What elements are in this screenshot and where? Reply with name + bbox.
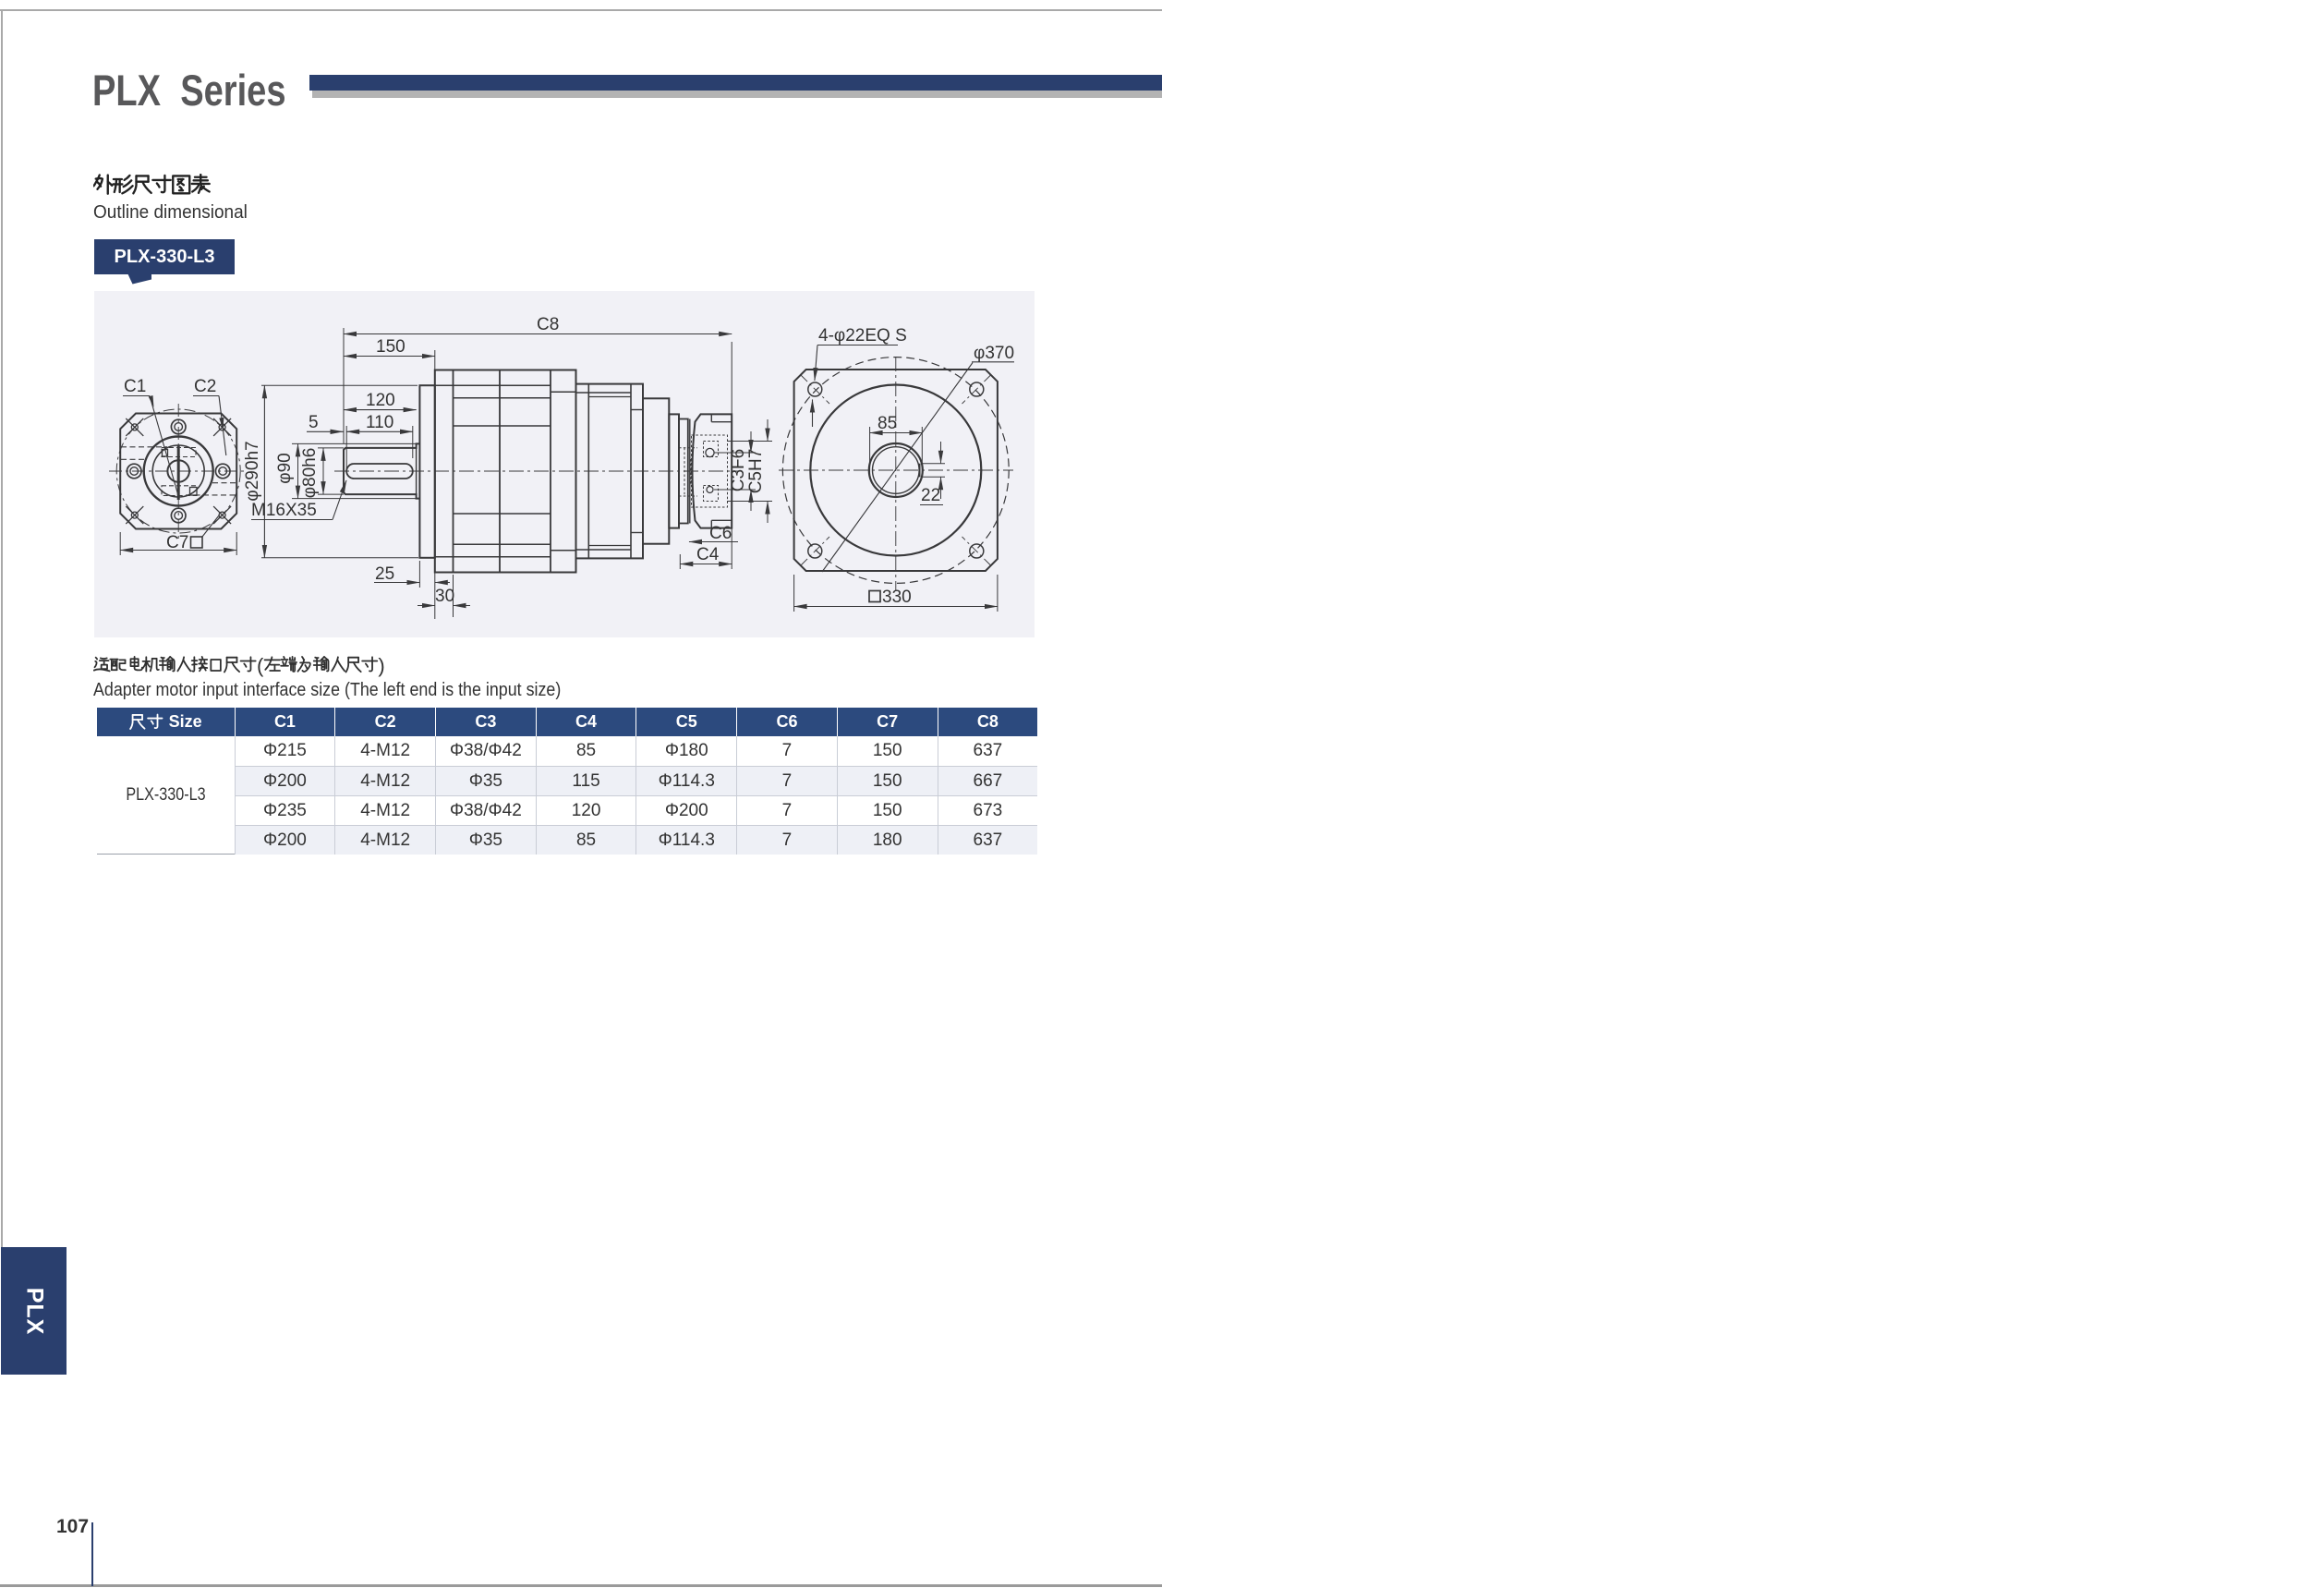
- svg-text:30: 30: [435, 587, 454, 606]
- svg-text:5: 5: [309, 413, 319, 432]
- svg-text:120: 120: [366, 391, 395, 410]
- svg-text:4-φ22EQ S: 4-φ22EQ S: [818, 326, 907, 345]
- svg-text:C8: C8: [537, 315, 559, 334]
- svg-text:C6: C6: [709, 524, 732, 543]
- svg-text:C4: C4: [696, 545, 720, 564]
- svg-text:C7: C7: [166, 533, 188, 552]
- svg-text:C3F6: C3F6: [729, 449, 748, 491]
- svg-text:): ): [378, 655, 384, 677]
- svg-text:C1: C1: [124, 377, 146, 396]
- svg-text:φ80h6: φ80h6: [300, 448, 320, 499]
- svg-text:φ370: φ370: [974, 344, 1014, 363]
- svg-text:150: 150: [376, 337, 405, 357]
- svg-text:22: 22: [921, 486, 940, 505]
- svg-text:C2: C2: [194, 377, 216, 396]
- svg-text:C5H7: C5H7: [746, 449, 766, 494]
- svg-text:(: (: [257, 655, 264, 677]
- svg-text:φ90: φ90: [275, 453, 295, 483]
- svg-text:φ290h7: φ290h7: [243, 441, 262, 501]
- svg-text:25: 25: [375, 564, 394, 584]
- svg-text:85: 85: [878, 414, 897, 433]
- svg-text:M16X35: M16X35: [251, 501, 317, 520]
- svg-text:330: 330: [882, 588, 912, 607]
- svg-text:110: 110: [366, 413, 393, 432]
